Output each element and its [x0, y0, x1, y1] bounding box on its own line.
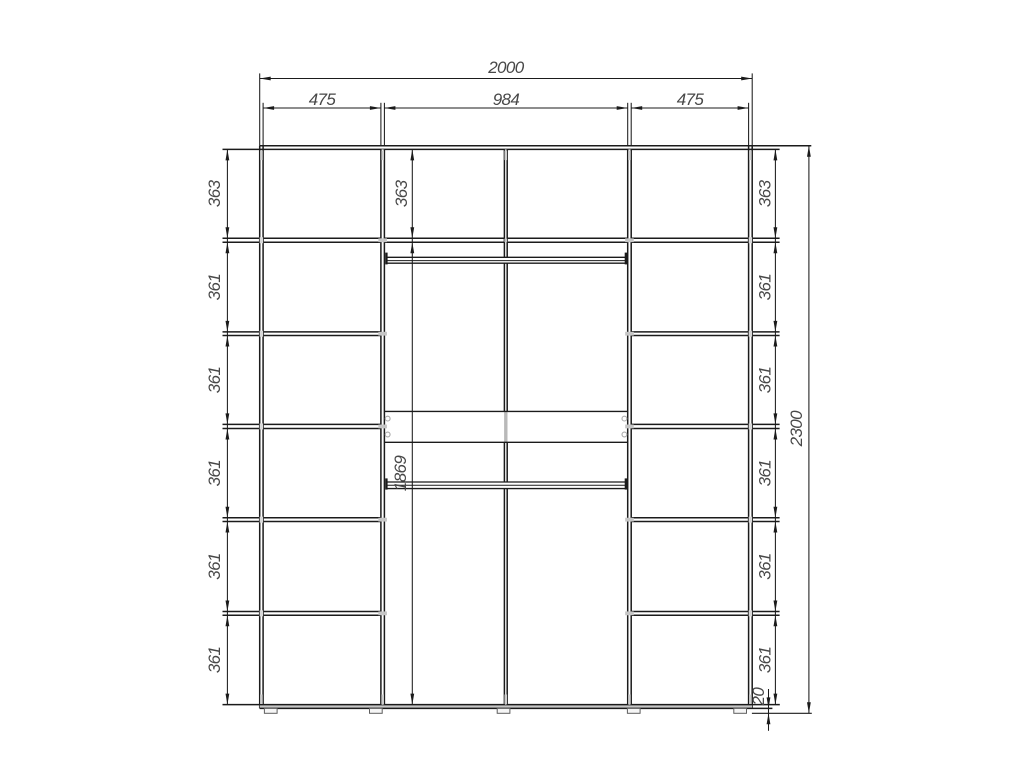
- svg-text:984: 984: [493, 90, 520, 109]
- svg-text:475: 475: [309, 90, 337, 109]
- svg-text:361: 361: [205, 553, 224, 580]
- svg-text:361: 361: [205, 274, 224, 301]
- svg-text:361: 361: [205, 646, 224, 673]
- svg-text:361: 361: [756, 553, 775, 580]
- svg-text:361: 361: [205, 367, 224, 394]
- svg-text:2300: 2300: [787, 410, 806, 448]
- svg-text:2000: 2000: [487, 58, 525, 77]
- svg-text:363: 363: [392, 179, 411, 207]
- svg-text:361: 361: [756, 274, 775, 301]
- svg-text:361: 361: [756, 460, 775, 487]
- svg-text:361: 361: [205, 460, 224, 487]
- svg-text:1869: 1869: [391, 455, 410, 492]
- svg-text:363: 363: [205, 179, 224, 207]
- svg-text:361: 361: [756, 646, 775, 673]
- svg-text:361: 361: [756, 367, 775, 394]
- svg-text:363: 363: [756, 179, 775, 207]
- svg-text:475: 475: [677, 90, 705, 109]
- svg-text:20: 20: [749, 687, 768, 707]
